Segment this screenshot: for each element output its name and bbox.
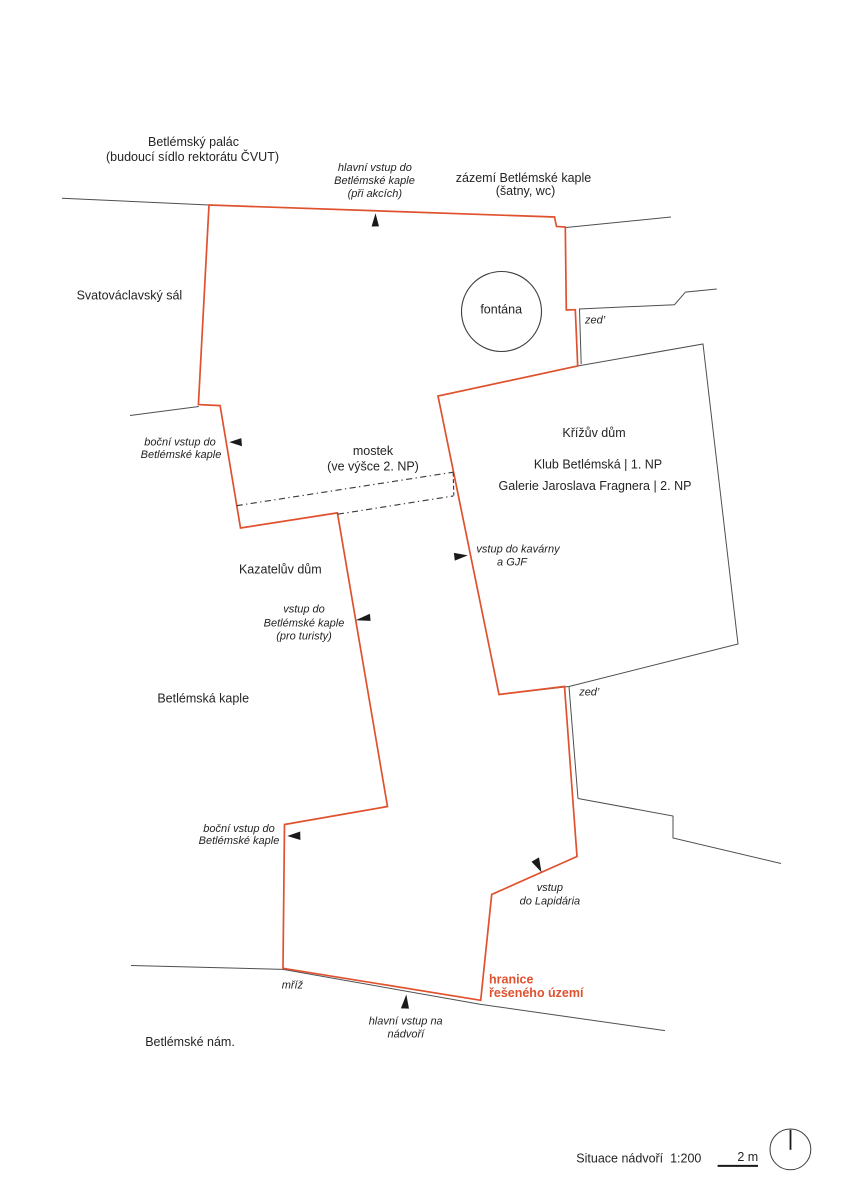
- svg-text:zázemí Betlémské kaple: zázemí Betlémské kaple: [456, 171, 592, 185]
- svg-text:Betlémské kaple: Betlémské kaple: [264, 618, 345, 630]
- svg-text:Betlémské kaple: Betlémské kaple: [334, 175, 415, 187]
- svg-text:Betlémská kaple: Betlémská kaple: [157, 691, 249, 705]
- svg-text:Betlémské kaple: Betlémské kaple: [141, 449, 222, 461]
- svg-text:hranice: hranice: [489, 972, 534, 986]
- svg-text:vstup do: vstup do: [283, 604, 325, 616]
- svg-text:Betlémské kaple: Betlémské kaple: [199, 835, 280, 847]
- svg-text:(šatny, wc): (šatny, wc): [496, 184, 556, 198]
- svg-text:Svatováclavský sál: Svatováclavský sál: [77, 288, 183, 302]
- svg-text:řešeného území: řešeného území: [489, 986, 584, 1000]
- svg-text:hlavní vstup do: hlavní vstup do: [338, 162, 412, 174]
- svg-text:(budoucí sídlo rektorátu ČVUT): (budoucí sídlo rektorátu ČVUT): [106, 149, 279, 164]
- svg-text:Betlémské nám.: Betlémské nám.: [145, 1035, 235, 1049]
- svg-text:Kazatelův dům: Kazatelův dům: [239, 562, 322, 576]
- svg-text:Klub Betlémská | 1. NP: Klub Betlémská | 1. NP: [534, 457, 662, 471]
- svg-text:(ve výšce 2. NP): (ve výšce 2. NP): [327, 460, 419, 474]
- svg-text:zed’: zed’: [584, 315, 606, 327]
- svg-text:boční vstup do: boční vstup do: [203, 823, 275, 835]
- svg-text:Křížův dům: Křížův dům: [562, 426, 625, 440]
- svg-text:hlavní vstup na: hlavní vstup na: [369, 1016, 443, 1028]
- svg-text:a GJF: a GJF: [497, 557, 528, 569]
- svg-text:(při akcích): (při akcích): [348, 188, 403, 200]
- svg-text:do Lapidária: do Lapidária: [520, 895, 581, 907]
- svg-text:vstup: vstup: [537, 882, 563, 894]
- svg-text:Situace nádvoří 1:200: Situace nádvoří 1:200: [576, 1152, 701, 1166]
- svg-text:Galerie Jaroslava Fragnera | 2: Galerie Jaroslava Fragnera | 2. NP: [499, 479, 692, 493]
- svg-text:boční vstup do: boční vstup do: [144, 437, 216, 449]
- svg-text:Betlémský palác: Betlémský palác: [148, 135, 239, 149]
- svg-text:zed’: zed’: [578, 687, 600, 699]
- svg-text:vstup do kavárny: vstup do kavárny: [476, 543, 561, 555]
- svg-text:mostek: mostek: [353, 444, 394, 458]
- svg-text:(pro turisty): (pro turisty): [276, 631, 332, 643]
- svg-text:mříž: mříž: [282, 980, 304, 992]
- svg-text:2 m: 2 m: [737, 1150, 758, 1164]
- svg-text:fontána: fontána: [480, 303, 522, 317]
- svg-text:nádvoří: nádvoří: [388, 1029, 426, 1041]
